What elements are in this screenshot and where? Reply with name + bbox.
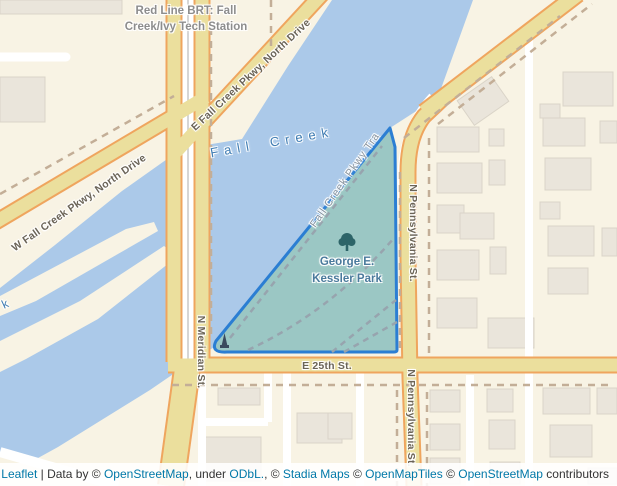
- attribution-data-by: Data by ©: [47, 467, 104, 481]
- map-canvas[interactable]: [0, 0, 617, 486]
- map-container[interactable]: Red Line BRT: Fall Creek/Ivy Tech Statio…: [0, 0, 617, 486]
- building: [548, 268, 588, 294]
- attribution-contributors: contributors: [543, 467, 609, 481]
- building: [597, 388, 617, 414]
- building: [437, 298, 477, 328]
- attribution-copyright: , ©: [264, 467, 283, 481]
- odbl-link[interactable]: ODbL.: [229, 467, 264, 481]
- building: [540, 202, 560, 219]
- building: [0, 0, 122, 14]
- building: [460, 213, 494, 239]
- openstreetmap-link[interactable]: OpenStreetMap: [104, 467, 189, 481]
- building: [437, 127, 479, 152]
- attribution-copyright: ©: [350, 467, 366, 481]
- building: [602, 228, 617, 256]
- attribution-separator: |: [37, 467, 47, 481]
- openmaptiles-link[interactable]: OpenMapTiles: [365, 467, 443, 481]
- attribution-under: , under: [189, 467, 230, 481]
- openstreetmap-link-2[interactable]: OpenStreetMap: [458, 467, 543, 481]
- building: [489, 129, 504, 146]
- building: [563, 72, 613, 106]
- leaflet-link[interactable]: Leaflet: [1, 467, 37, 481]
- building: [430, 424, 460, 450]
- building: [430, 390, 460, 412]
- building: [487, 389, 513, 412]
- building: [490, 247, 506, 274]
- building: [550, 425, 592, 457]
- building: [489, 420, 515, 449]
- building: [328, 413, 352, 439]
- building: [437, 163, 482, 193]
- building: [0, 77, 45, 122]
- building: [600, 121, 617, 143]
- attribution-bar: Leaflet | Data by © OpenStreetMap, under…: [0, 463, 617, 486]
- attribution-copyright: ©: [443, 467, 459, 481]
- building: [543, 388, 590, 414]
- building: [548, 226, 594, 256]
- building: [545, 158, 591, 190]
- building: [543, 118, 585, 146]
- building: [540, 104, 560, 118]
- stadia-maps-link[interactable]: Stadia Maps: [283, 467, 350, 481]
- building: [218, 388, 260, 405]
- building: [489, 160, 505, 185]
- building: [437, 250, 479, 280]
